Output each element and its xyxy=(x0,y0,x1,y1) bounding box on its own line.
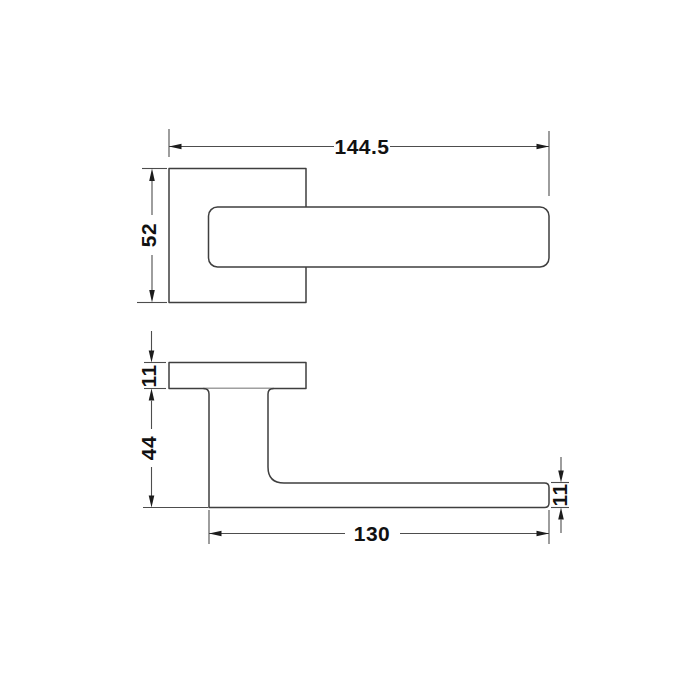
dimension-value-lever-length: 130 xyxy=(354,522,391,545)
dimension-value-lever-thickness: 11 xyxy=(548,483,571,506)
arrowhead-down-icon xyxy=(558,471,564,483)
door-handle-dimension-drawing: 144.5 52 xyxy=(0,0,690,690)
arrowhead-down-icon xyxy=(149,351,155,363)
arrowhead-right-icon xyxy=(537,144,550,150)
dimension-handle-height: 44 xyxy=(137,401,208,508)
top-view: 144.5 52 xyxy=(137,129,549,303)
arrowhead-down-icon xyxy=(149,290,155,303)
lever-handle-plan xyxy=(209,207,550,267)
technical-drawing-canvas: 144.5 52 xyxy=(0,0,690,690)
arrowhead-left-icon xyxy=(209,531,222,537)
dimension-rose-thickness: 11 xyxy=(137,331,166,401)
rose-plate-profile xyxy=(169,363,306,389)
arrowhead-up-icon xyxy=(558,508,564,520)
side-view: 11 44 130 xyxy=(137,331,571,545)
dimension-value-overall-length: 144.5 xyxy=(334,135,389,158)
lever-handle-profile xyxy=(204,389,550,508)
dimension-rose-width: 52 xyxy=(137,169,167,303)
arrowhead-left-icon xyxy=(169,144,182,150)
dimension-value-rose-thickness: 11 xyxy=(137,364,160,387)
arrowhead-down-icon xyxy=(149,496,155,508)
arrowhead-up-icon xyxy=(149,169,155,182)
dimension-value-handle-height: 44 xyxy=(137,436,160,460)
arrowhead-up-icon xyxy=(149,389,155,401)
dimension-lever-length: 130 xyxy=(209,510,549,545)
dimension-value-rose-width: 52 xyxy=(137,223,160,247)
dimension-lever-thickness: 11 xyxy=(548,457,571,533)
arrowhead-right-icon xyxy=(537,531,550,537)
